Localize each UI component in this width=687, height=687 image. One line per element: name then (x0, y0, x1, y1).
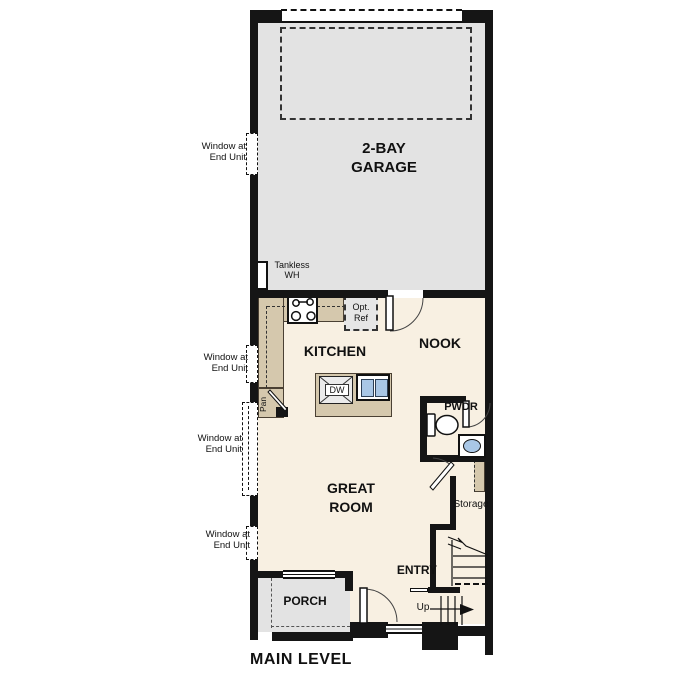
room-label-porch: PORCH (276, 595, 334, 609)
range-stove (287, 294, 318, 324)
room-label-garage: 2-BAY GARAGE (323, 139, 445, 177)
porch-wall-top-left (250, 571, 283, 578)
stair-landing-wall (428, 587, 460, 593)
room-label-nook: NOOK (406, 335, 474, 351)
room-label-great-room: GREAT ROOM (307, 479, 395, 517)
room-label-kitchen: KITCHEN (293, 343, 377, 359)
stair-wall-bottom (455, 626, 493, 636)
powder-wall-bottom (420, 455, 493, 462)
under-stair-cabinet (474, 460, 485, 492)
window-note-garage: Window at End Unit (196, 141, 246, 163)
garage-door (281, 12, 462, 23)
powder-wall-left (420, 396, 427, 462)
garage-kitchen-wall-right (423, 290, 493, 298)
window-inner-dashed (248, 406, 249, 490)
garage-end-window (246, 133, 258, 175)
counter-dashed-line-v (266, 306, 267, 388)
stair-landing-wall-thin (410, 588, 428, 592)
island-sink (356, 374, 390, 401)
optional-refrigerator: Opt. Ref (344, 294, 378, 331)
right-exterior-wall (485, 10, 493, 655)
dishwasher-label: DW (325, 384, 349, 396)
garage-door-outline (280, 27, 472, 120)
sink-basin-left (361, 379, 374, 397)
opt-ref-label: Opt. Ref (352, 302, 369, 323)
plan-title: MAIN LEVEL (250, 651, 390, 669)
stair-overhead-dashed-line (455, 583, 488, 585)
great-room-end-window-large (242, 402, 258, 496)
room-label-powder: PWDR (437, 401, 485, 414)
room-label-entry: ENTRY (386, 564, 448, 578)
entry-wall-pier (422, 622, 458, 650)
porch-dashed-line-h (271, 626, 350, 627)
sink-basin-right (375, 379, 388, 397)
garage-door-dashed-line (281, 9, 462, 11)
top-wall-right-corner (462, 10, 493, 23)
tankless-wh-label: Tankless WH (269, 260, 315, 281)
porch-wall-top-right (335, 571, 353, 578)
entry-window (386, 624, 422, 634)
room-label-pantry: Pan (259, 391, 269, 417)
stair-wall-left (430, 530, 436, 592)
porch-window (283, 570, 335, 579)
room-label-storage: Storage (448, 499, 494, 511)
floor-plan: Opt. Ref (0, 0, 687, 687)
window-note-kitchen: Window at End Unit (198, 352, 248, 374)
window-note-great-room-2: Window at End Unit (200, 529, 250, 551)
porch-wall-bottom (272, 632, 353, 641)
garage-kitchen-wall-left (250, 290, 388, 298)
window-note-great-room-1: Window at End Unit (192, 433, 242, 455)
pantry-wall-stub (276, 407, 288, 417)
stairs-up-label: Up (413, 602, 433, 614)
top-wall-left-corner (250, 10, 282, 23)
kitchen-counter-left (258, 296, 284, 388)
porch-dashed-line-v (271, 578, 272, 628)
entry-wall-bottom-left (350, 622, 388, 638)
